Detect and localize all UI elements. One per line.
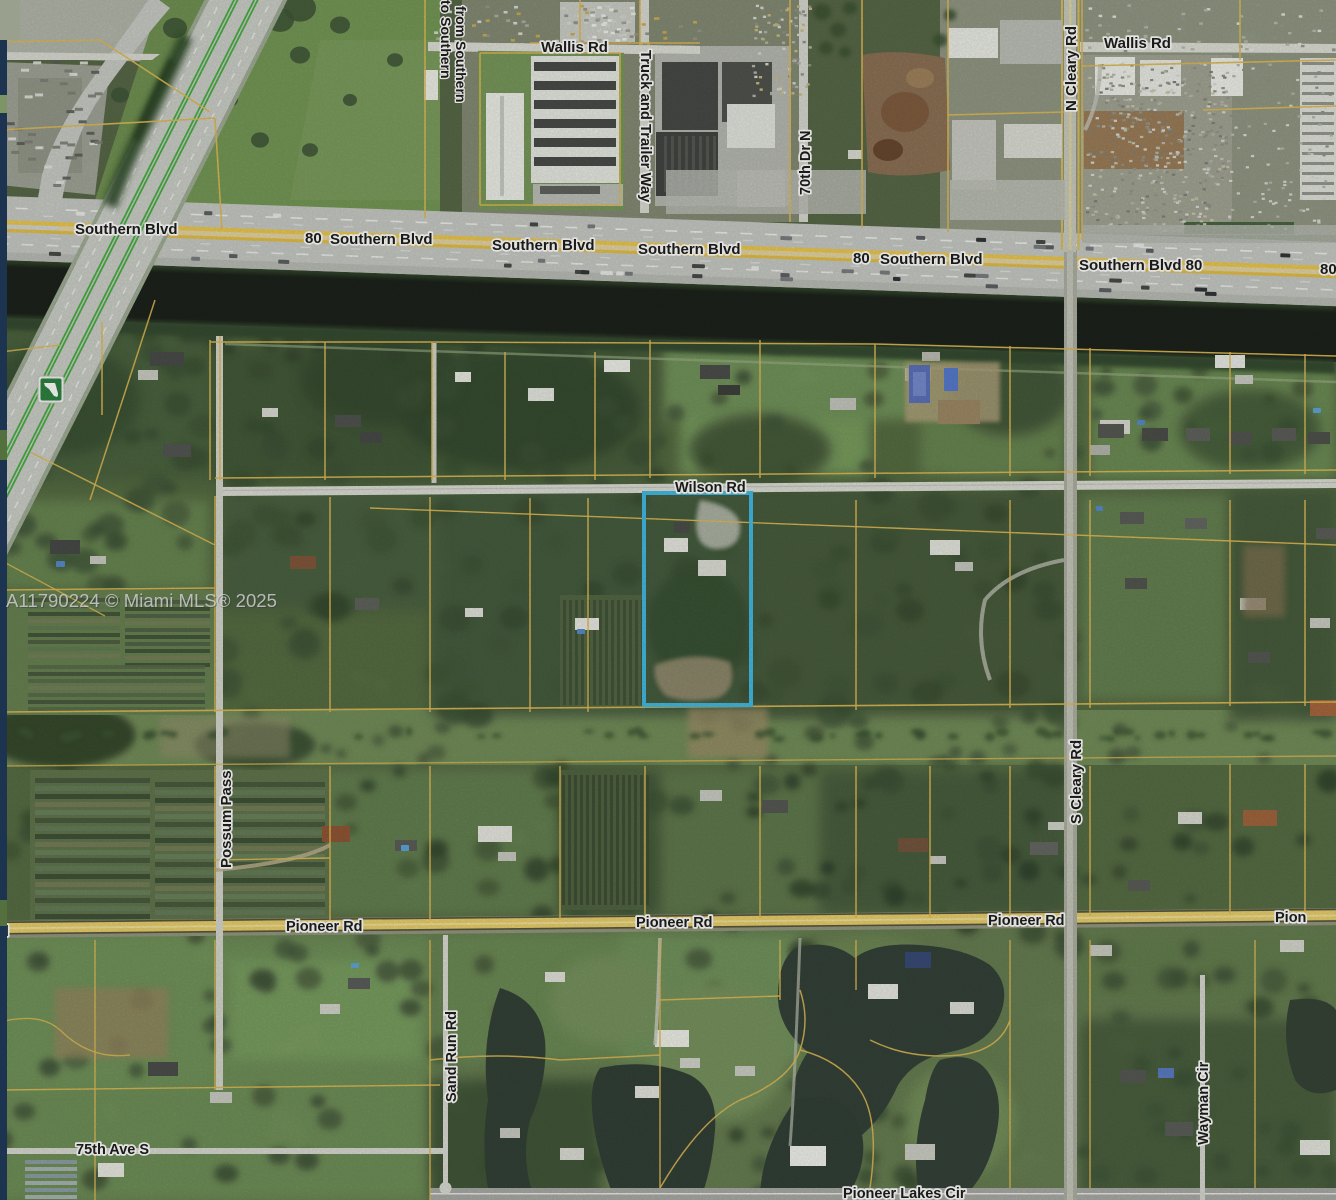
svg-text:A11790224 © Miami MLS® 2025: A11790224 © Miami MLS® 2025 (6, 590, 277, 611)
